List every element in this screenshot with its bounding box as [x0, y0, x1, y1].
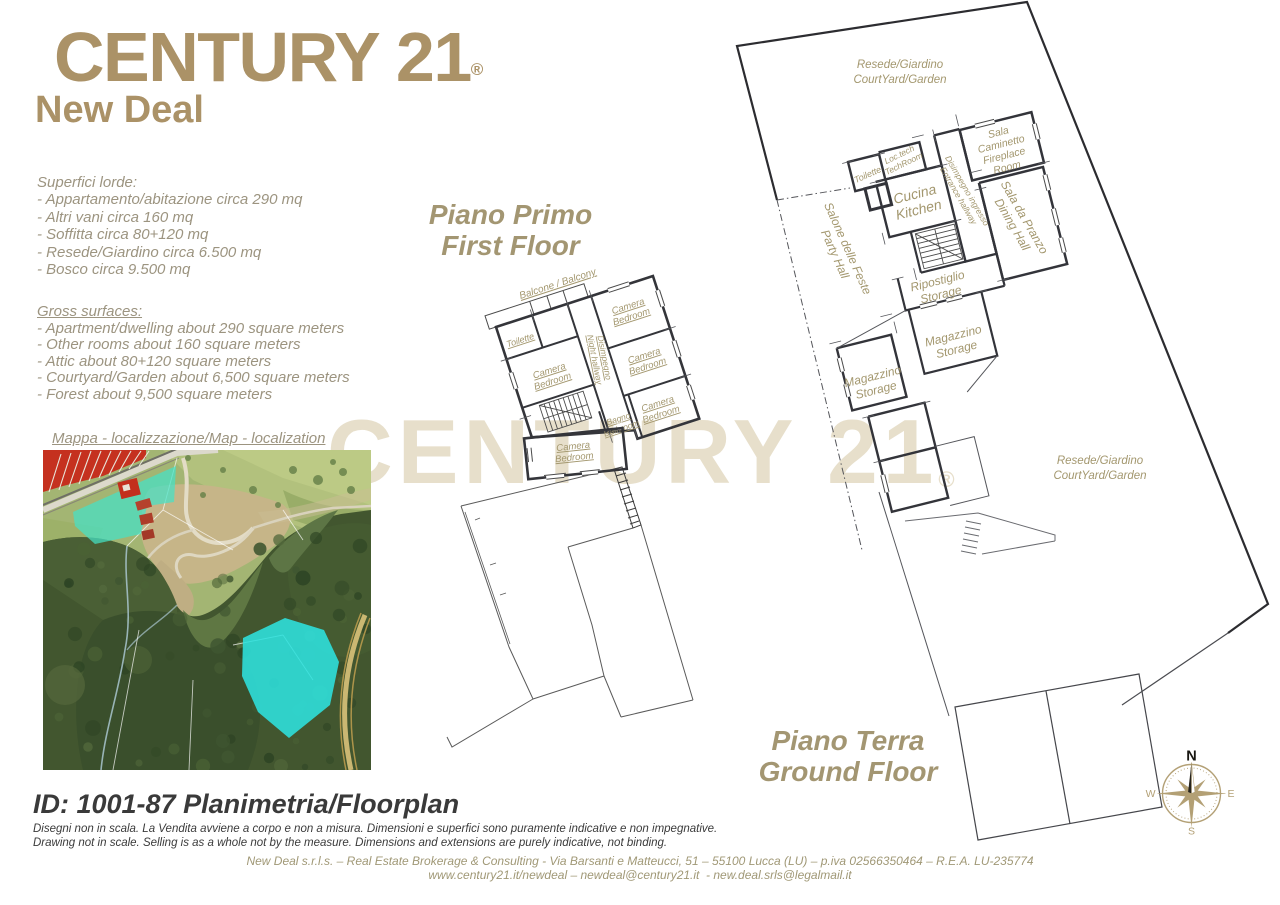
svg-text:Resede/Giardino: Resede/Giardino: [1057, 455, 1144, 467]
svg-text:CourtYard/Garden: CourtYard/Garden: [1053, 470, 1146, 482]
svg-text:Toilette: Toilette: [505, 331, 535, 349]
svg-text:W: W: [1146, 788, 1156, 800]
svg-text:Resede/Giardino: Resede/Giardino: [857, 59, 944, 71]
svg-text:E: E: [1228, 788, 1235, 800]
svg-text:N: N: [1186, 749, 1196, 765]
svg-text:S: S: [1188, 826, 1195, 838]
svg-text:CourtYard/Garden: CourtYard/Garden: [853, 74, 946, 86]
